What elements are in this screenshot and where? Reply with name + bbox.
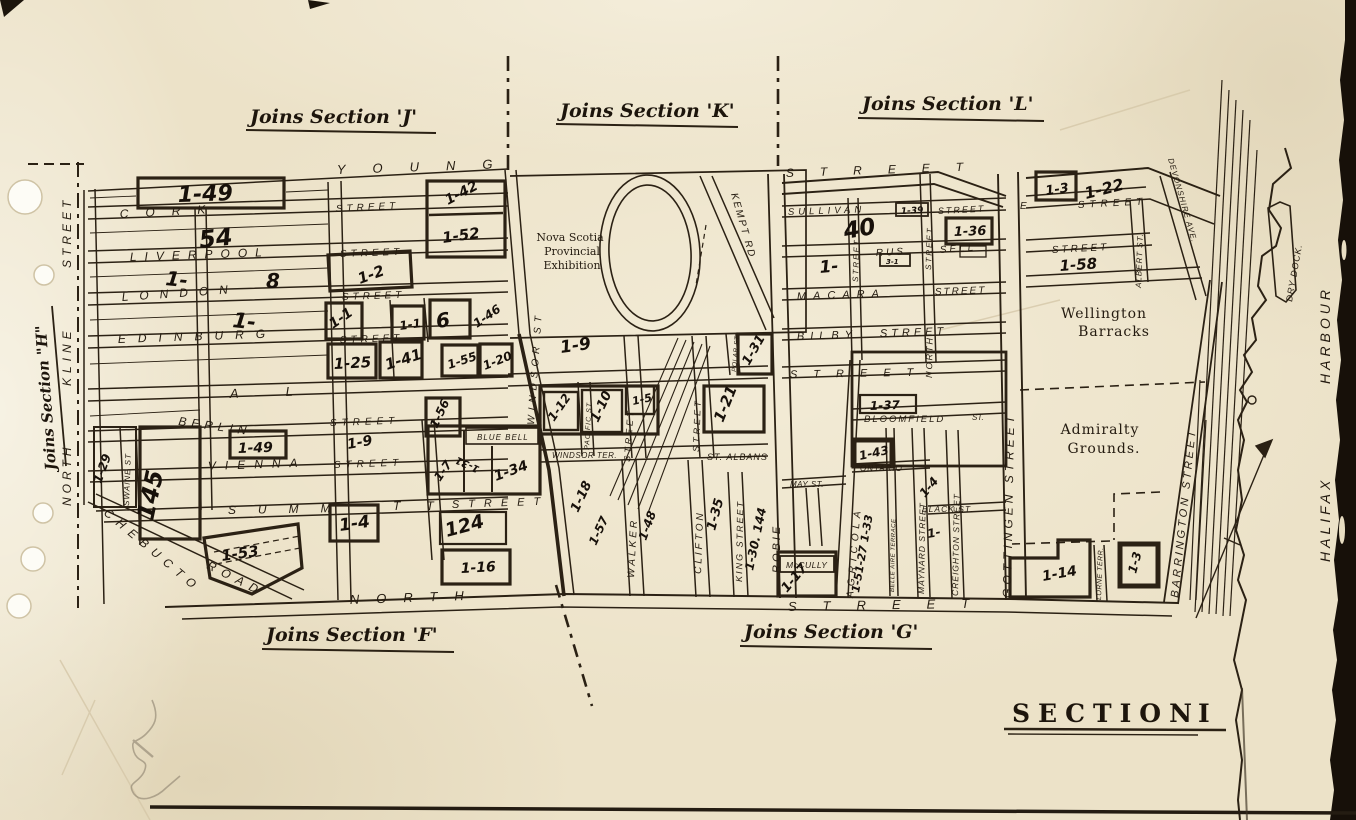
- street-gottingen: GOTTINGEN STREET: [1000, 412, 1017, 598]
- block-1-55: 1-55: [446, 349, 479, 372]
- page-edges: [0, 0, 1356, 820]
- block-1-41: 1-41: [383, 345, 424, 374]
- block-1-9: 1-9: [559, 334, 592, 358]
- map-label: STREET: [1052, 242, 1110, 256]
- block-1-3: 1-3: [1044, 181, 1069, 199]
- map-label: NORTH: [924, 336, 935, 378]
- map-label: Grounds.: [1068, 441, 1141, 457]
- pencil-scribble: [131, 700, 180, 799]
- map-label: 1-: [231, 308, 257, 334]
- street-summit: SUMM: [228, 501, 353, 517]
- street-almon: A L: [229, 383, 316, 401]
- map-label: STREET: [938, 204, 986, 216]
- block-1-52: 1-52: [441, 224, 481, 247]
- block-6: 6: [434, 307, 451, 333]
- street-macara: MACARA: [797, 288, 886, 303]
- join-section-g: Joins Section 'G': [741, 621, 918, 643]
- block-1-46: 1-46: [471, 302, 504, 331]
- map-canvas: Joins Section 'J'Joins Section 'K'Joins …: [0, 0, 1356, 820]
- block-54: 54: [198, 223, 234, 254]
- block-1-25: 1-25: [333, 353, 371, 373]
- block-1-5: 1-5: [631, 391, 653, 408]
- map-label: STREET: [60, 197, 74, 268]
- street-st-albans: ST. ALBANS: [707, 452, 768, 462]
- street-walker: WALKER: [626, 518, 640, 579]
- section-title: SECTION: [1012, 699, 1200, 728]
- map-label: Barracks: [1078, 324, 1150, 340]
- block-1-24: 124: [443, 510, 487, 542]
- block-1-43: 1-43: [858, 443, 890, 463]
- map-label: STREET: [786, 159, 990, 180]
- map-label: HARBOUR: [1317, 286, 1333, 384]
- map-label: 1-: [926, 525, 942, 541]
- map-label: 1-1: [398, 316, 421, 333]
- block-1-30-1-44: 1-30. 144: [742, 506, 769, 571]
- label-blue-bell: BLUE BELL: [477, 433, 529, 442]
- block-1-2: 1-2: [355, 262, 387, 288]
- block-1-4: 1-4: [338, 512, 371, 536]
- map-label: STREET: [336, 201, 400, 215]
- join-section-j: Joins Section 'J': [247, 106, 417, 128]
- map-label: TT: [393, 499, 460, 513]
- block-1-53: 1-53: [220, 542, 260, 565]
- block-1-36: 1-36: [954, 224, 987, 240]
- label-dry-dock: DRY DOCK.: [1284, 243, 1304, 302]
- street-ontario: ONTARIO: [860, 464, 903, 473]
- map-label: STREET: [622, 408, 636, 462]
- block-1-39: 1-39: [901, 206, 924, 217]
- map-label: STREET: [880, 326, 948, 340]
- block-1-12: 1-12: [545, 391, 574, 424]
- torn-right-edge: [1330, 0, 1356, 820]
- join-section-f: Joins Section 'F': [263, 624, 438, 646]
- map-label: 1-: [164, 266, 189, 292]
- label-admiralty-grounds: Admiralty: [1060, 422, 1140, 438]
- map-label: STREET: [330, 416, 400, 429]
- street-bloomfield: BLOOMFIELD: [864, 414, 945, 425]
- street-black: BLACK ST.: [922, 504, 974, 514]
- block-1-3-south: 1-3: [1125, 550, 1144, 575]
- block-1-40: 1-: [819, 256, 840, 278]
- map-label: 1-9: [346, 433, 374, 453]
- street-swaine: SWAINE ST: [122, 453, 133, 506]
- block-1-16: 1-16: [460, 559, 496, 577]
- map-label: ST.: [972, 413, 984, 422]
- block-1-21: 1-21: [710, 383, 741, 425]
- street-sullivan: SULLIVAN: [788, 204, 866, 218]
- map-label: STREET: [851, 238, 862, 282]
- block-1-20: 1-20: [481, 349, 514, 373]
- map-label: STREET: [340, 333, 404, 346]
- street-robie: ROBIE: [771, 524, 783, 573]
- block-1-49: 1-49: [177, 181, 233, 208]
- street-vienna: VIENNA: [208, 456, 307, 473]
- corner-mark: [0, 0, 24, 17]
- label-exhibition: Nova Scotia: [536, 231, 604, 244]
- map-label: STREET: [334, 458, 404, 471]
- block-1-35: 1-35: [704, 497, 727, 532]
- street-berlin: BERLIN: [178, 414, 253, 438]
- block-1-37: 1-37: [870, 398, 901, 413]
- map-label: E: [1020, 201, 1027, 212]
- map-label: STREET: [691, 398, 703, 452]
- map-label: STREET: [924, 226, 935, 270]
- street-north: NORTH: [350, 587, 481, 607]
- block-1-8: 8: [266, 269, 280, 293]
- join-section-l: Joins Section 'L': [859, 93, 1033, 115]
- street-kempt-road: KEMPT RD: [728, 192, 757, 260]
- map-label: 1-49: [238, 440, 274, 457]
- street-bilby: BILBY: [797, 329, 859, 343]
- north-arrow: [1196, 440, 1272, 618]
- scanned-map-page: Joins Section 'J'Joins Section 'K'Joins …: [0, 0, 1356, 820]
- fold-line: [1242, 688, 1247, 820]
- street-devonshire: DEVONSHIRE AVE.: [1166, 157, 1199, 244]
- street-lorne-terrace: LORNE TERR.: [1096, 547, 1105, 600]
- street-maynard: MAYNARD STREET: [916, 502, 928, 594]
- map-label: KLINE: [60, 326, 74, 386]
- street-creighton: CREIGHTON STREET: [950, 493, 962, 596]
- map-label: STREET: [342, 290, 406, 303]
- section-title-letter: I: [1198, 699, 1210, 728]
- street-young: YOUNG: [337, 156, 520, 177]
- map-label: 1-4: [917, 474, 942, 500]
- block-1-31: 1-31: [739, 332, 768, 368]
- block-1-18: 1-18: [568, 479, 595, 515]
- street-clifton: CLIFTON: [693, 510, 706, 574]
- map-label: 40: [841, 214, 878, 245]
- street-may: MAY ST.: [790, 480, 824, 489]
- exhibition-oval: [596, 172, 704, 333]
- block-1-58: 1-58: [1059, 254, 1098, 275]
- street-north-kline: NORTH: [60, 444, 74, 506]
- map-label: SELL: [939, 242, 976, 256]
- block-3-1: 3-1: [886, 258, 899, 266]
- map-label: Exhibition: [543, 259, 600, 272]
- map-label: Provincial: [544, 245, 600, 258]
- street-belle-aire: BELLE AIRE TERRACE: [890, 518, 897, 592]
- label-wellington-barracks: Wellington: [1061, 306, 1147, 322]
- bottom-edge: [150, 807, 1356, 813]
- map-label: STREET: [935, 285, 987, 298]
- block-1-34: 1-34: [492, 458, 530, 485]
- map-label: STREET: [790, 367, 930, 381]
- map-label: STREET: [340, 247, 404, 260]
- map-label: STREET: [452, 496, 550, 511]
- join-section-k: Joins Section 'K': [557, 100, 735, 122]
- label-halifax-harbour: HALIFAX: [1317, 477, 1333, 562]
- block-1-57: 1-57: [586, 514, 612, 548]
- block-1-14: 1-14: [1041, 563, 1078, 585]
- street-windsor-terrace: WINDSOR TER.: [552, 451, 617, 460]
